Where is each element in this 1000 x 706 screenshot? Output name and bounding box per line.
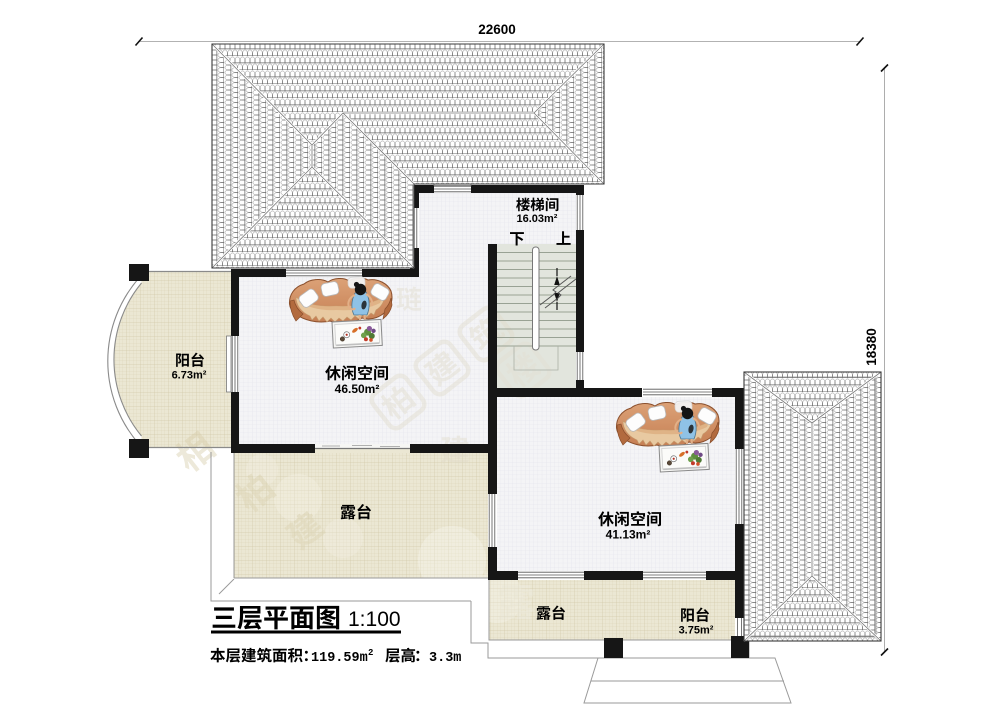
svg-text:18380: 18380	[864, 328, 879, 366]
svg-text:6.73m²: 6.73m²	[172, 370, 207, 382]
svg-text:2: 2	[368, 648, 373, 658]
svg-text:41.13m²: 41.13m²	[606, 528, 651, 542]
svg-text:119.59m: 119.59m	[311, 651, 368, 666]
svg-text:22600: 22600	[478, 22, 516, 37]
svg-text:3.3m: 3.3m	[429, 651, 461, 666]
svg-text:1:100: 1:100	[348, 608, 401, 631]
svg-text:16.03m²: 16.03m²	[517, 213, 558, 225]
svg-text:3.75m²: 3.75m²	[679, 625, 714, 637]
svg-text:46.50m²: 46.50m²	[335, 382, 380, 396]
